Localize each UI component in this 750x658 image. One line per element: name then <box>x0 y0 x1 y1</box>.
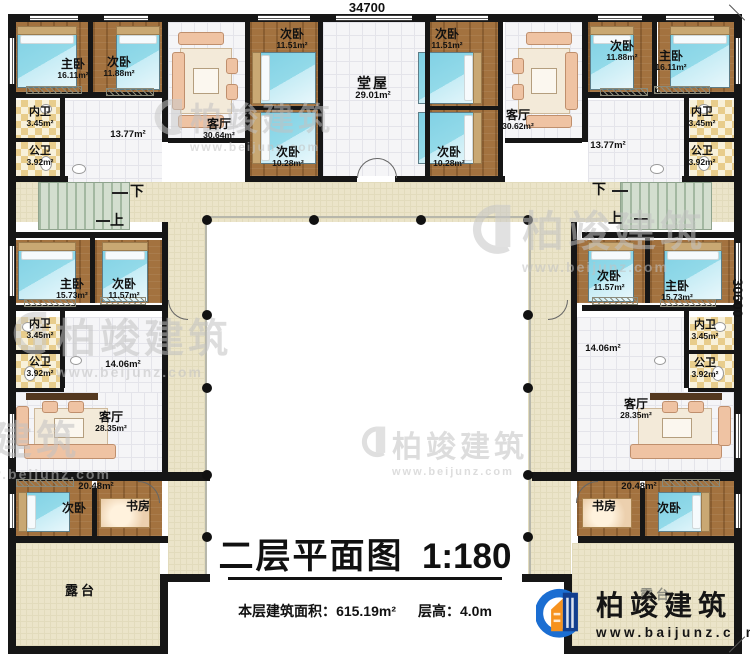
room-label-second-mid-left: 次卧 11.57m² <box>93 278 155 300</box>
room-name: 客厅 <box>188 118 250 131</box>
decor-shape <box>566 598 569 628</box>
room-area: 13.77m² <box>98 130 158 140</box>
dimension-right: 30600 <box>730 263 746 333</box>
room-label-master-mid-right: 主卧 15.73m² <box>645 280 709 302</box>
sofa <box>630 444 722 459</box>
wall-segment <box>14 232 162 238</box>
room-name: 次卧 <box>262 28 322 41</box>
logo-text-group: 柏竣建筑 www.baijunz.com <box>596 584 750 640</box>
room-name: 次卧 <box>417 28 477 41</box>
suite-area-bottom-left: 20.48m² <box>64 482 128 492</box>
room-area: 20.48m² <box>607 482 671 492</box>
room-name: 客厅 <box>604 398 668 411</box>
decor-shape <box>171 99 182 130</box>
wall-segment <box>245 176 357 182</box>
hall-area-mid-right: 14.06m² <box>572 344 634 354</box>
room-area: 11.51m² <box>417 41 477 50</box>
wall-segment <box>14 176 68 182</box>
dimension-top: 34700 <box>312 0 422 15</box>
title-text: 二层平面图 <box>219 537 404 576</box>
window <box>258 15 310 21</box>
room-label-study-bottom-left: 书房 <box>114 500 162 513</box>
room-area: 11.51m² <box>262 41 322 50</box>
room-name: 次卧 <box>93 278 155 291</box>
room-name: 主卧 <box>640 50 702 63</box>
room-area: 3.45m² <box>16 119 64 128</box>
info-height-label: 层高： <box>418 603 460 619</box>
wall-segment <box>8 646 168 654</box>
window <box>9 494 15 528</box>
drawing-title: 二层平面图 1:180 <box>210 528 520 579</box>
stair-arrow-line <box>612 190 628 192</box>
wall-segment <box>505 138 582 143</box>
room-area: 28.35m² <box>604 411 668 420</box>
column-dot <box>202 383 212 393</box>
window <box>336 15 412 21</box>
room-label-second-bottom-right: 次卧 <box>645 502 693 515</box>
company-name: 柏竣建筑 <box>596 584 750 624</box>
bath-fixture <box>72 164 86 174</box>
room-label-second-top-left: 次卧 11.88m² <box>88 56 150 78</box>
window-sill-hatch <box>654 86 710 94</box>
watermark-logo-icon <box>358 422 392 460</box>
stair-arrow-line <box>96 220 110 222</box>
window <box>30 15 78 21</box>
suite-area-bottom-right: 20.48m² <box>607 482 671 492</box>
room-label-public-bath-mid-right: 公卫 3.92m² <box>681 358 729 379</box>
wall-segment <box>14 138 64 142</box>
room-label-second-mid-right: 次卧 11.57m² <box>578 270 640 292</box>
room-area: 30.62m² <box>487 122 549 131</box>
room-label-terrace-left: 露台 <box>55 584 107 598</box>
tile-floor <box>577 317 684 392</box>
stair-up-label-left: 上 <box>110 210 124 230</box>
column-dot <box>416 215 426 225</box>
sofa <box>718 406 731 446</box>
window-sill-hatch <box>106 88 154 96</box>
window-sill-hatch <box>26 86 82 94</box>
room-area: 30.64m² <box>188 131 250 140</box>
sofa <box>512 58 524 74</box>
hall-area-mid-left: 14.06m² <box>92 360 154 370</box>
room-label-living-mid-left: 客厅 28.35m² <box>79 411 143 433</box>
tv-cabinet <box>26 393 98 400</box>
room-label-living-top-left: 客厅 30.64m² <box>188 118 250 140</box>
room-label-main-hall: 堂屋 29.01m² <box>336 76 410 101</box>
watermark-name: 柏竣建筑 <box>392 422 528 466</box>
wall-segment <box>395 176 505 182</box>
wall-segment <box>688 350 736 354</box>
wall-segment <box>14 388 64 392</box>
wall-segment <box>160 574 168 654</box>
watermark: 柏竣建筑 www.beijunz.com <box>358 422 528 478</box>
room-name: 次卧 <box>256 146 320 159</box>
window <box>666 15 714 21</box>
corridor-floor <box>168 222 207 574</box>
column-dot <box>309 215 319 225</box>
room-name: 次卧 <box>88 56 150 69</box>
info-area-label: 本层建筑面积： <box>238 603 336 619</box>
room-name: 次卧 <box>645 502 693 515</box>
room-area: 28.35m² <box>79 424 143 433</box>
room-area: 3.92m² <box>681 370 729 379</box>
room-name: 露台 <box>55 584 107 598</box>
title-underline <box>228 577 502 580</box>
room-label-second-center-rt: 次卧 11.51m² <box>417 28 477 50</box>
sofa <box>688 401 704 413</box>
watermark-site: www.beijunz.com <box>0 466 111 482</box>
window <box>436 15 488 21</box>
wall-segment <box>498 22 503 182</box>
room-area: 11.57m² <box>578 283 640 292</box>
room-name: 书房 <box>114 500 162 513</box>
watermark-name: 柏竣建筑 <box>56 306 232 364</box>
room-name: 堂屋 <box>336 76 410 91</box>
wall-segment <box>10 536 168 543</box>
room-name: 次卧 <box>417 146 481 159</box>
coffee-table <box>193 68 219 94</box>
room-label-inner-bath-mid-left: 内卫 3.45m² <box>16 319 64 340</box>
title-scale: 1:180 <box>422 537 512 576</box>
sofa <box>526 32 572 45</box>
floor-plan-canvas: 主卧 16.11m² 次卧 11.88m² 13.77m² 客厅 30.64m²… <box>0 0 750 658</box>
sofa <box>565 52 578 110</box>
watermark-site: www.beijunz.com <box>392 466 514 478</box>
room-name: 次卧 <box>578 270 640 283</box>
sofa <box>178 32 224 45</box>
room-label-study-bottom-right: 书房 <box>580 500 628 513</box>
room-label-public-bath-mid-left: 公卫 3.92m² <box>16 357 64 378</box>
stair-down-label-right: 下 <box>592 179 606 199</box>
decor-shape <box>554 620 561 623</box>
info-height-value: 4.0m <box>460 603 492 619</box>
company-logo: 柏竣建筑 www.baijunz.com <box>536 584 750 640</box>
window-sill-hatch <box>592 297 638 305</box>
room-label-second-center-lt: 次卧 11.51m² <box>262 28 322 50</box>
room-area: 29.01m² <box>336 91 410 101</box>
decor-shape <box>571 598 574 628</box>
wall-segment <box>582 22 588 142</box>
room-label-living-mid-right: 客厅 28.35m² <box>604 398 668 420</box>
room-area: 10.28m² <box>256 159 320 168</box>
room-area: 3.45m² <box>16 331 64 340</box>
decor-shape <box>554 613 561 616</box>
room-label-living-top-right: 客厅 30.62m² <box>487 109 549 131</box>
room-label-master-top-right: 主卧 16.11m² <box>640 50 702 72</box>
decor-shape <box>376 427 385 453</box>
coffee-table <box>531 68 557 94</box>
stair-up-label-right: 上 <box>608 208 622 228</box>
room-label-public-bath-top-right: 公卫 3.92m² <box>678 146 726 167</box>
room-area: 14.06m² <box>92 360 154 370</box>
decor-shape <box>495 205 510 247</box>
window <box>735 38 741 84</box>
window <box>735 494 741 528</box>
room-area: 13.77m² <box>578 141 638 151</box>
stair-arrow-line <box>112 192 128 194</box>
wall-segment <box>734 14 742 654</box>
window <box>9 246 15 296</box>
room-name: 主卧 <box>645 280 709 293</box>
window <box>104 15 148 21</box>
watermark: 柏竣建筑 www.beijunz.com <box>466 198 706 275</box>
room-name: 书房 <box>580 500 628 513</box>
room-area: 15.73m² <box>645 293 709 302</box>
window-sill-hatch <box>600 88 648 96</box>
column-dot <box>202 470 212 480</box>
sofa <box>512 84 524 100</box>
room-area: 3.92m² <box>16 369 64 378</box>
decor-shape <box>563 593 578 632</box>
room-label-second-bottom-left: 次卧 <box>50 502 98 515</box>
room-area: 3.45m² <box>678 119 726 128</box>
coffee-table <box>662 418 692 438</box>
wall-segment <box>578 536 736 543</box>
room-name: 客厅 <box>487 109 549 122</box>
info-area-value: 615.19m² <box>336 603 396 619</box>
room-area: 11.88m² <box>88 69 150 78</box>
room-label-public-bath-top-left: 公卫 3.92m² <box>16 146 64 167</box>
window <box>735 414 741 458</box>
wall-segment <box>688 138 736 142</box>
room-area: 14.06m² <box>572 344 634 354</box>
watermark-name: 柏竣建筑 <box>0 408 80 466</box>
room-area: 11.57m² <box>93 291 155 300</box>
window <box>9 38 15 84</box>
column-dot <box>523 532 533 542</box>
room-area: 3.45m² <box>681 332 729 341</box>
watermark-text-group: 柏竣建筑 www.beijunz.com <box>392 422 528 478</box>
company-site: www.baijunz.com <box>596 625 750 640</box>
room-area: 10.28m² <box>417 159 481 168</box>
drawing-info: 本层建筑面积：615.19m²层高：4.0m <box>215 601 515 621</box>
watermark-logo-icon <box>466 198 522 258</box>
room-area: 3.92m² <box>678 158 726 167</box>
wall-segment <box>688 388 736 392</box>
column-dot <box>523 310 533 320</box>
stair-down-label-left: 下 <box>130 181 144 201</box>
sofa <box>226 58 238 74</box>
hall-area-top-right: 13.77m² <box>578 141 638 151</box>
window <box>598 15 642 21</box>
room-label-inner-bath-top-right: 内卫 3.45m² <box>678 107 726 128</box>
room-area: 16.11m² <box>640 63 702 72</box>
room-label-inner-bath-mid-right: 内卫 3.45m² <box>681 320 729 341</box>
room-label-inner-bath-top-left: 内卫 3.45m² <box>16 107 64 128</box>
hall-area-top-left: 13.77m² <box>98 130 158 140</box>
room-name: 客厅 <box>79 411 143 424</box>
room-area: 3.92m² <box>16 158 64 167</box>
room-area: 20.48m² <box>64 482 128 492</box>
bath-fixture <box>650 164 664 174</box>
wall-segment <box>682 176 736 182</box>
column-dot <box>202 215 212 225</box>
room-name: 次卧 <box>50 502 98 515</box>
room-label-second-center-lb: 次卧 10.28m² <box>256 146 320 168</box>
bath-fixture <box>654 356 666 365</box>
column-dot <box>523 383 533 393</box>
room-label-second-center-rb: 次卧 10.28m² <box>417 146 481 168</box>
wall-segment <box>564 646 742 654</box>
company-logo-icon <box>536 584 588 640</box>
